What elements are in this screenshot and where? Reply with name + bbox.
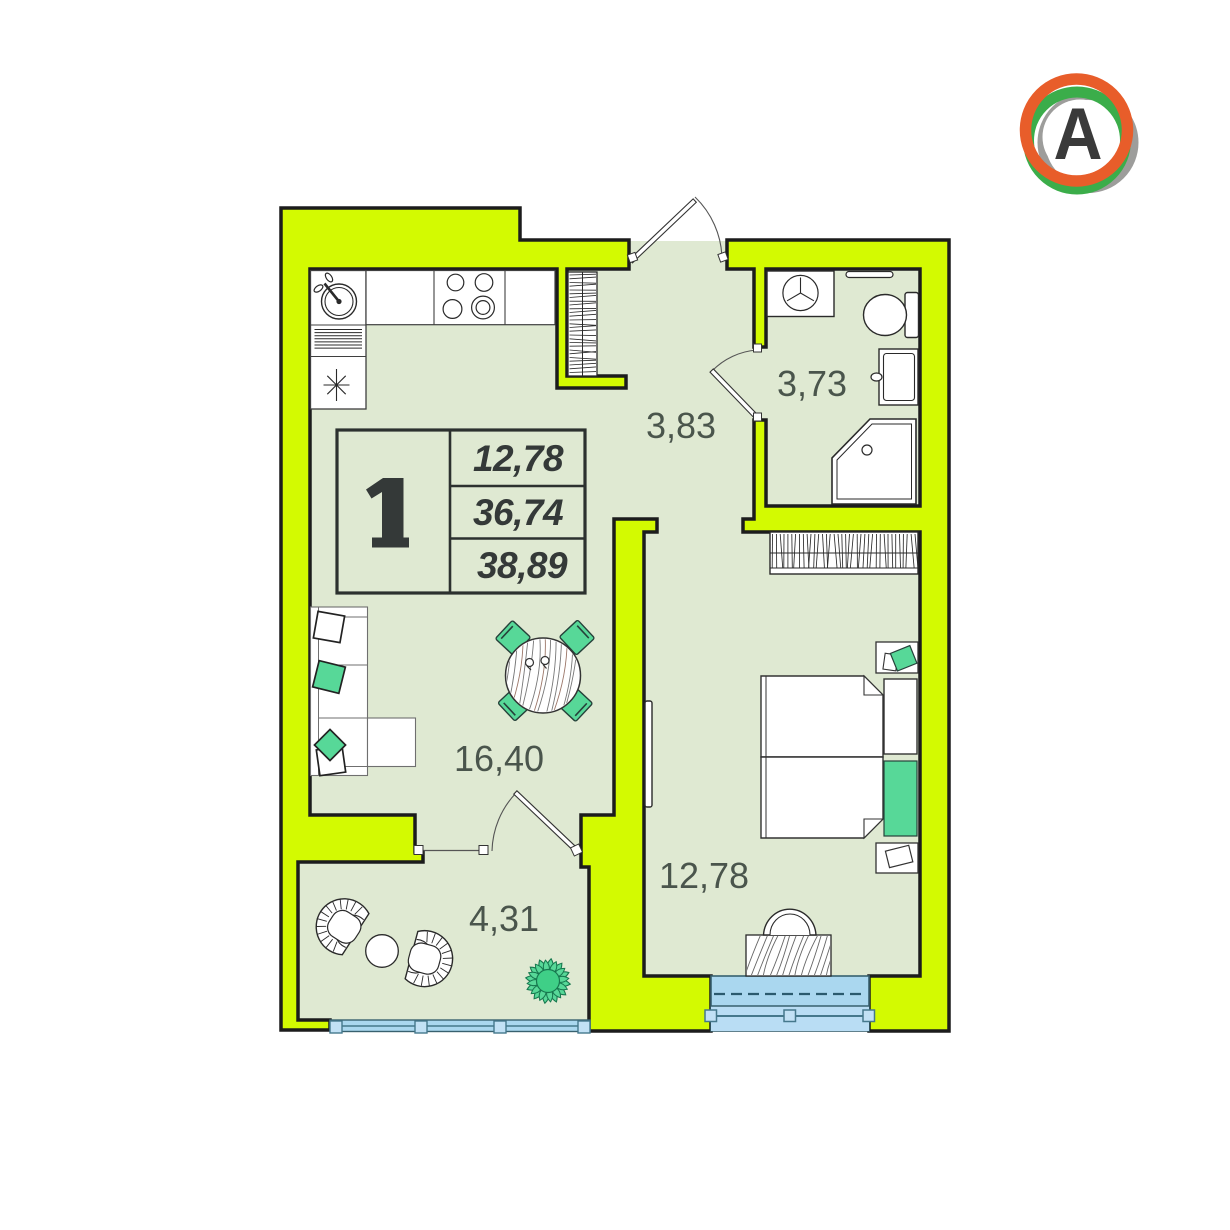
svg-text:16,40: 16,40 bbox=[454, 738, 544, 779]
svg-text:3,83: 3,83 bbox=[646, 405, 716, 446]
svg-text:4,31: 4,31 bbox=[469, 898, 539, 939]
svg-text:12,78: 12,78 bbox=[473, 438, 564, 479]
svg-text:12,78: 12,78 bbox=[659, 855, 749, 896]
svg-text:A: A bbox=[1053, 93, 1102, 175]
svg-text:38,89: 38,89 bbox=[477, 545, 568, 586]
svg-text:3,73: 3,73 bbox=[777, 363, 847, 404]
svg-text:36,74: 36,74 bbox=[473, 492, 563, 533]
